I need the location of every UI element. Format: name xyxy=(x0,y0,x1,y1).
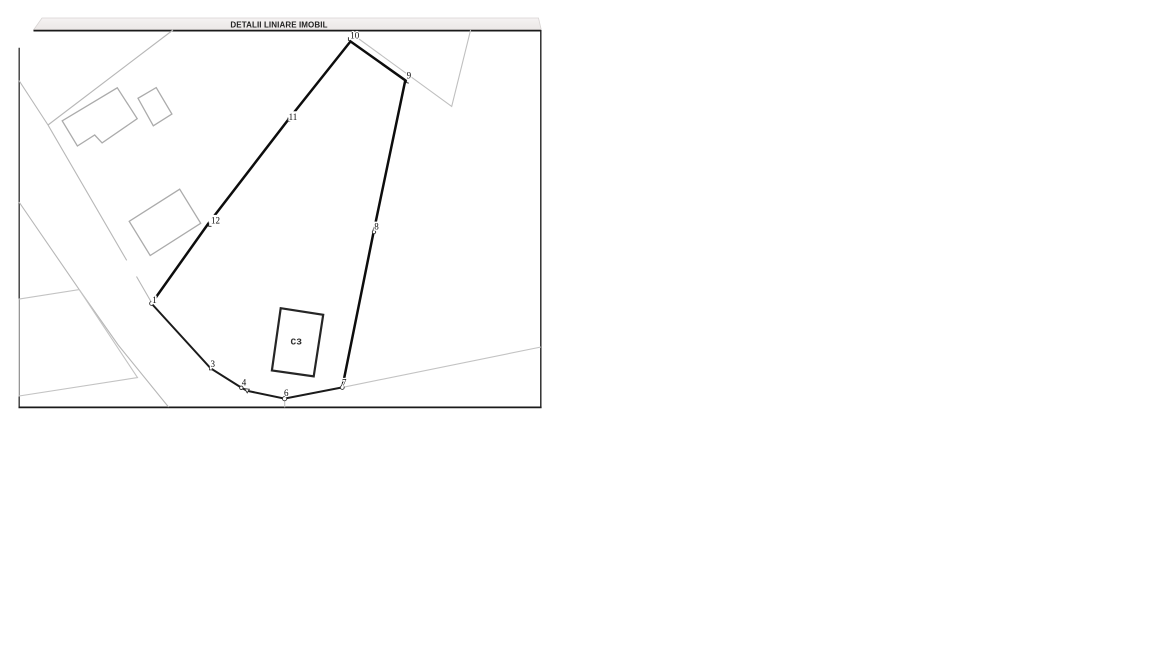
svg-text:11: 11 xyxy=(289,112,298,122)
svg-text:3: 3 xyxy=(211,359,216,369)
svg-text:6: 6 xyxy=(284,388,289,398)
svg-text:7: 7 xyxy=(342,377,347,387)
svg-text:4: 4 xyxy=(242,378,247,388)
svg-text:1: 1 xyxy=(152,295,157,305)
svg-text:9: 9 xyxy=(407,71,412,81)
svg-text:12: 12 xyxy=(211,215,220,225)
svg-text:10: 10 xyxy=(350,31,360,41)
svg-text:C3: C3 xyxy=(291,337,303,348)
svg-text:8: 8 xyxy=(374,222,379,232)
svg-text:DETALII LINIARE IMOBIL: DETALII LINIARE IMOBIL xyxy=(230,21,327,30)
